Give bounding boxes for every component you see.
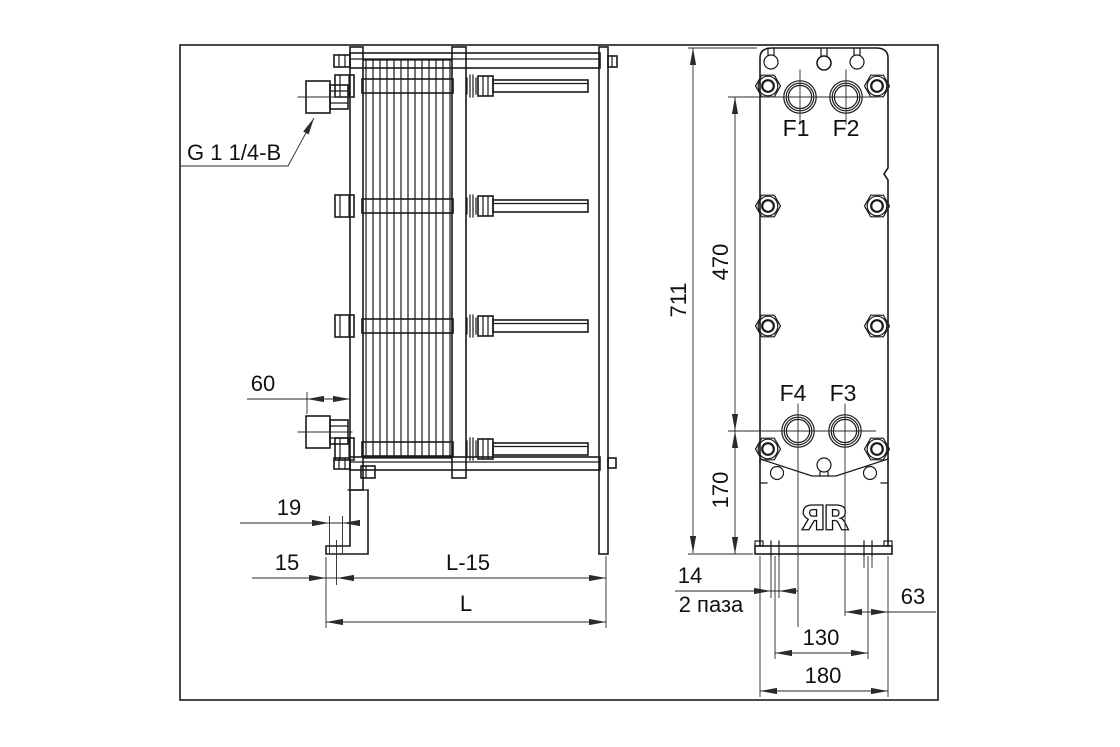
plate-outline — [760, 48, 888, 546]
connection-nozzle-upper — [298, 81, 352, 113]
dim-port-span: 470 — [708, 97, 735, 431]
front-view: F1 F2 F4 F3 ЯR 711 470 — [666, 48, 936, 697]
port-f1-label: F1 — [783, 115, 810, 141]
base-plate — [755, 541, 892, 556]
tie-bolt-nut — [865, 315, 890, 337]
dim-L-label: L — [460, 591, 472, 616]
slot-count-note: 2 паза — [679, 592, 744, 617]
fixed-frame-plate — [350, 47, 363, 490]
ridan-logo-icon: ЯR — [800, 499, 849, 539]
dim-port-to-edge: 63 — [845, 584, 936, 612]
dim-nozzle-protrusion: 60 — [247, 371, 350, 414]
dim-170-label: 170 — [708, 472, 733, 509]
tie-bolt-nut — [865, 195, 890, 217]
technical-drawing: G 1 1/4-B 60 19 15 L-15 L — [0, 0, 1120, 747]
dim-180-label: 180 — [805, 663, 842, 688]
port-f3: F3 — [818, 380, 872, 458]
dim-60-label: 60 — [251, 371, 275, 396]
foot-bracket — [326, 490, 368, 585]
port-f2-label: F2 — [833, 115, 860, 141]
dim-130-label: 130 — [803, 625, 840, 650]
dim-slot-width: 14 2 паза — [675, 556, 798, 617]
plate-pack — [363, 60, 452, 458]
port-f3-label: F3 — [830, 380, 857, 406]
dim-711-label: 711 — [666, 282, 691, 317]
dim-15-label: 15 — [275, 550, 299, 575]
hanging-slot-left — [764, 48, 778, 69]
pressure-plate — [452, 47, 466, 478]
dim-port-to-base: 170 — [708, 431, 735, 554]
centerlines — [728, 97, 876, 627]
thread-label: G 1 1/4-B — [187, 140, 281, 165]
drawing-frame-border — [180, 45, 938, 700]
port-f1: F1 — [773, 70, 827, 141]
lower-guide-bar — [334, 457, 616, 478]
dim-foot-slot-length: 19 — [240, 495, 360, 523]
dim-19-label: 19 — [277, 495, 301, 520]
rear-support-column — [599, 47, 608, 554]
port-f4-label: F4 — [780, 380, 807, 406]
lifting-eye — [817, 48, 831, 70]
connection-nozzle-lower — [298, 416, 352, 448]
dim-470-label: 470 — [708, 244, 733, 281]
port-f2: F2 — [819, 70, 873, 141]
dim-edge-to-slot-and-frame: 15 L-15 — [252, 550, 606, 628]
tie-bolt-nut — [865, 438, 890, 460]
foot-bolt-hole — [771, 467, 784, 480]
dim-14-label: 14 — [678, 563, 702, 588]
dim-L-minus-15-label: L-15 — [446, 550, 490, 575]
foot-bolt-hole — [864, 467, 877, 480]
tie-bolt-nut — [865, 75, 890, 97]
dim-frame-length: L — [326, 591, 606, 622]
thread-callout: G 1 1/4-B — [181, 118, 314, 166]
dim-63-label: 63 — [901, 584, 925, 609]
side-view: G 1 1/4-B 60 19 15 L-15 L — [181, 47, 617, 628]
hanging-slot-right — [850, 48, 864, 69]
drawing-sheet: G 1 1/4-B 60 19 15 L-15 L — [0, 0, 1120, 747]
dim-slot-spacing: 130 — [775, 556, 872, 659]
